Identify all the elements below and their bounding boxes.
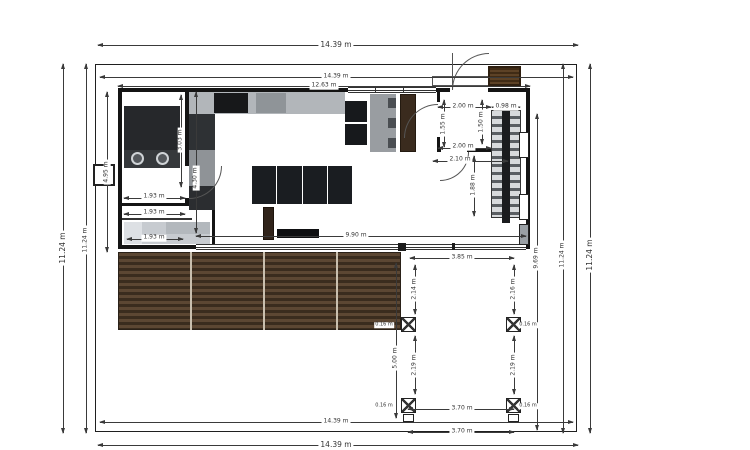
dim-stair-run: 1.88 m <box>471 172 478 197</box>
dim-pergola-left-lower: 2.19 m <box>412 352 419 377</box>
window-band-north <box>348 87 436 93</box>
sofa-group <box>252 166 352 204</box>
dim-posts-span-inner: 3.70 m <box>449 406 474 413</box>
dining-chair <box>388 118 396 128</box>
dim-house-width: 12.63 m <box>310 83 339 90</box>
sofa-module <box>277 166 301 204</box>
dim-left-inner: 11.24 m <box>83 226 90 255</box>
sofa-module <box>252 166 276 204</box>
dim-pergola-left-upper: 2.14 m <box>412 276 419 301</box>
dim-line <box>537 114 538 430</box>
dim-right-outer: 11.24 m <box>586 237 594 272</box>
dim-room-193-a: 1.93 m <box>141 194 166 201</box>
dim-stair-width: 0.98 m <box>493 104 518 111</box>
glass-wall-post <box>398 243 406 251</box>
sink-right <box>156 152 169 165</box>
dim-entry-hall: 2.10 m <box>447 157 472 164</box>
dim-pergola-right-upper: 2.16 m <box>511 276 518 301</box>
dim-room-193-c: 1.93 m <box>141 235 166 242</box>
dim-bottom-outer: 14.39 m <box>318 441 353 449</box>
post-footing <box>403 414 414 422</box>
dim-post-c: 0.16 m <box>374 403 394 409</box>
window-mullion <box>403 87 404 93</box>
dim-line <box>196 92 197 233</box>
glass-wall-south <box>196 244 526 250</box>
entry-door-arc <box>452 53 489 90</box>
dim-entry-door: 1.50 m <box>479 109 486 134</box>
dim-post-a: 0.16 m <box>374 322 394 328</box>
dim-left-outer: 11.24 m <box>59 230 67 265</box>
dim-hall-height: 4.30 m <box>193 165 200 190</box>
window-mullion <box>375 87 376 93</box>
dim-post-d: 0.16 m <box>518 403 538 409</box>
dim-bottom-inner: 14.39 m <box>322 419 351 426</box>
bed-blanket <box>166 222 210 234</box>
dim-posts-span-outer: 3.70 m <box>449 429 474 436</box>
bathroom-cabinet <box>124 106 180 152</box>
dim-house-left-height: 4.95 m <box>104 159 111 184</box>
deck <box>118 252 401 330</box>
dim-pergola-width: 3.85 m <box>449 255 474 262</box>
floor-plan-canvas: 14.39 m14.39 m12.63 m14.39 m14.39 m11.24… <box>0 0 750 450</box>
storage-box <box>519 194 529 220</box>
pergola-post <box>401 398 416 413</box>
pergola-post <box>401 317 416 332</box>
dining-chair <box>388 138 396 148</box>
wall-rooms-mid <box>122 218 192 220</box>
entry-door-leaf <box>452 53 453 89</box>
kitchen-island-2 <box>345 124 367 145</box>
bed-pillow <box>124 222 142 244</box>
deck-seam <box>263 252 265 330</box>
sink-left <box>131 152 144 165</box>
dim-yard-height: 5.00 m <box>393 345 400 370</box>
dim-top-outer: 14.39 m <box>318 41 353 49</box>
dim-right-969: 9.69 m <box>534 245 541 270</box>
dim-line <box>396 263 397 418</box>
doormat <box>488 66 521 86</box>
dim-entry-top: 2.00 m <box>450 104 475 111</box>
dim-top-inner: 14.39 m <box>322 74 351 81</box>
sofa-module <box>303 166 327 204</box>
dim-entry-bottom: 2.00 m <box>450 144 475 151</box>
staircase-stringer <box>502 105 510 223</box>
dining-chair <box>388 98 396 108</box>
cooktop <box>214 93 248 113</box>
dim-right-inner: 11.24 m <box>560 241 567 270</box>
deck-seam <box>336 252 338 330</box>
dim-bath-height: 3.03 m <box>178 127 185 152</box>
kitchen-island <box>345 101 367 122</box>
storage-box <box>519 132 529 158</box>
dim-room-193-b: 1.93 m <box>141 210 166 217</box>
dim-post-b: 0.16 m <box>518 322 538 328</box>
kitchen-sink-module <box>256 93 286 113</box>
dim-entry-left: 1.55 m <box>441 111 448 136</box>
glass-wall-post <box>452 243 455 250</box>
post-footing <box>508 414 519 422</box>
dim-pergola-right-lower: 2.19 m <box>511 352 518 377</box>
dim-glass-wall: 9.90 m <box>343 233 368 240</box>
deck-seam <box>190 252 192 330</box>
sofa-module <box>328 166 352 204</box>
